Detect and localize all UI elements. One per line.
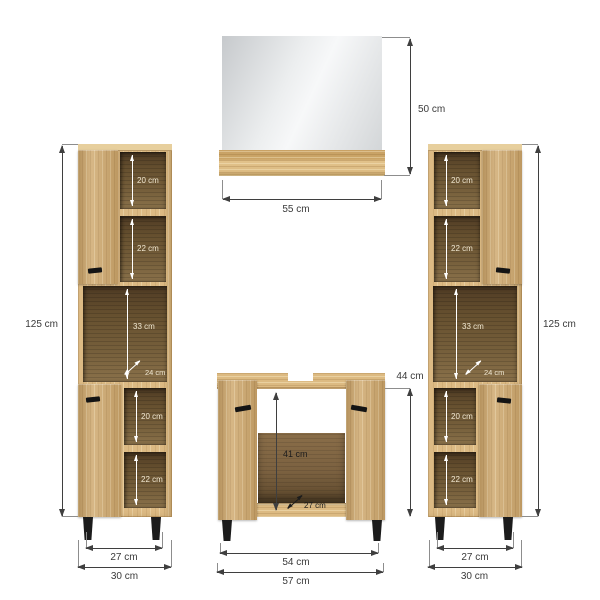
vanity-depth-label: 27 cm	[304, 501, 326, 510]
vanity-outer-width-line	[217, 572, 383, 573]
vanity-group: 41 cm 27 cm 44 cm 54 cm 57 cm	[0, 0, 600, 600]
vanity-leg	[372, 520, 382, 541]
door-handle	[235, 405, 252, 413]
door-handle	[351, 405, 368, 413]
vanity-right-door	[346, 380, 385, 520]
vanity-inner-width-line	[220, 553, 378, 554]
vanity-back-panel	[258, 433, 345, 503]
vanity-pipe-notch	[288, 373, 313, 381]
vanity-outer-width-label: 57 cm	[266, 576, 326, 587]
vanity-inner-height-arrow	[276, 393, 277, 510]
vanity-left-door	[218, 380, 257, 520]
vanity-height-label: 44 cm	[390, 371, 430, 382]
vanity-interior: 41 cm 27 cm	[257, 389, 346, 517]
vanity-height-dimension-line	[410, 389, 411, 516]
vanity-leg	[222, 520, 232, 541]
vanity-inner-width-label: 54 cm	[266, 557, 326, 568]
vanity-bottom-shelf	[257, 503, 346, 517]
vanity-inner-height-label: 41 cm	[283, 449, 308, 459]
furniture-dimension-diagram: 50 cm 55 cm 20 cm 22 cm 33 cm	[0, 0, 600, 600]
